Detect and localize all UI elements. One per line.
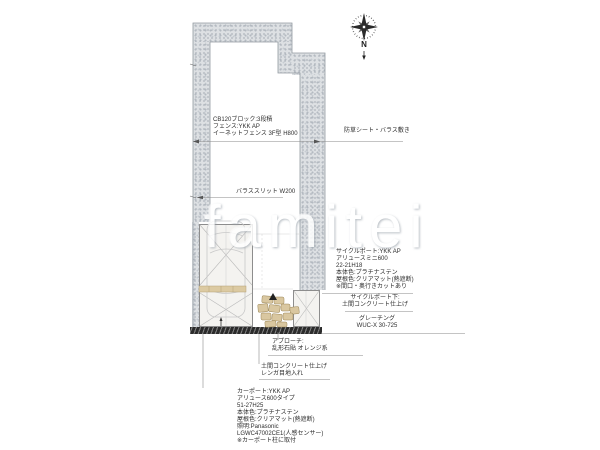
small-arrow-marker xyxy=(220,317,223,326)
site-plan-drawing: famitei N CB120ブロック:3段積 フェンス:YKK AP イーネッ… xyxy=(0,0,600,450)
cycleport-under-label: サイクルポート下: 土間コンクリート仕上げ xyxy=(336,295,414,309)
compass-north-label: N xyxy=(356,40,372,49)
compass-rose xyxy=(350,13,378,60)
doma-concrete-label: 土間コンクリート仕上げ レンガ目地入れ xyxy=(261,364,341,378)
paving-step-band xyxy=(199,286,246,292)
approach-label: アプローチ: 乱形石貼 オレンジ系 xyxy=(272,339,352,353)
cycleport-spec-label: サイクルポート:YKK AP アリュースミニ600 22-21H18 本体色:プ… xyxy=(336,249,426,291)
weed-sheet-label: 防草シート・バラス敷き xyxy=(344,128,424,135)
block-fence-label: CB120ブロック:3段積 フェンス:YKK AP イーネットフェンス 3F型 … xyxy=(213,117,328,138)
approach-stones xyxy=(258,296,300,328)
grating-label: グレーチング WUC-X 30-725 xyxy=(336,316,418,330)
carport-spec-label: カーポート:YKK AP アリュース600タイプ 51-27H25 本体色:プラ… xyxy=(237,389,337,445)
gravel-slit-label: バラススリット W200 xyxy=(236,189,306,196)
plan-outline xyxy=(193,23,325,327)
